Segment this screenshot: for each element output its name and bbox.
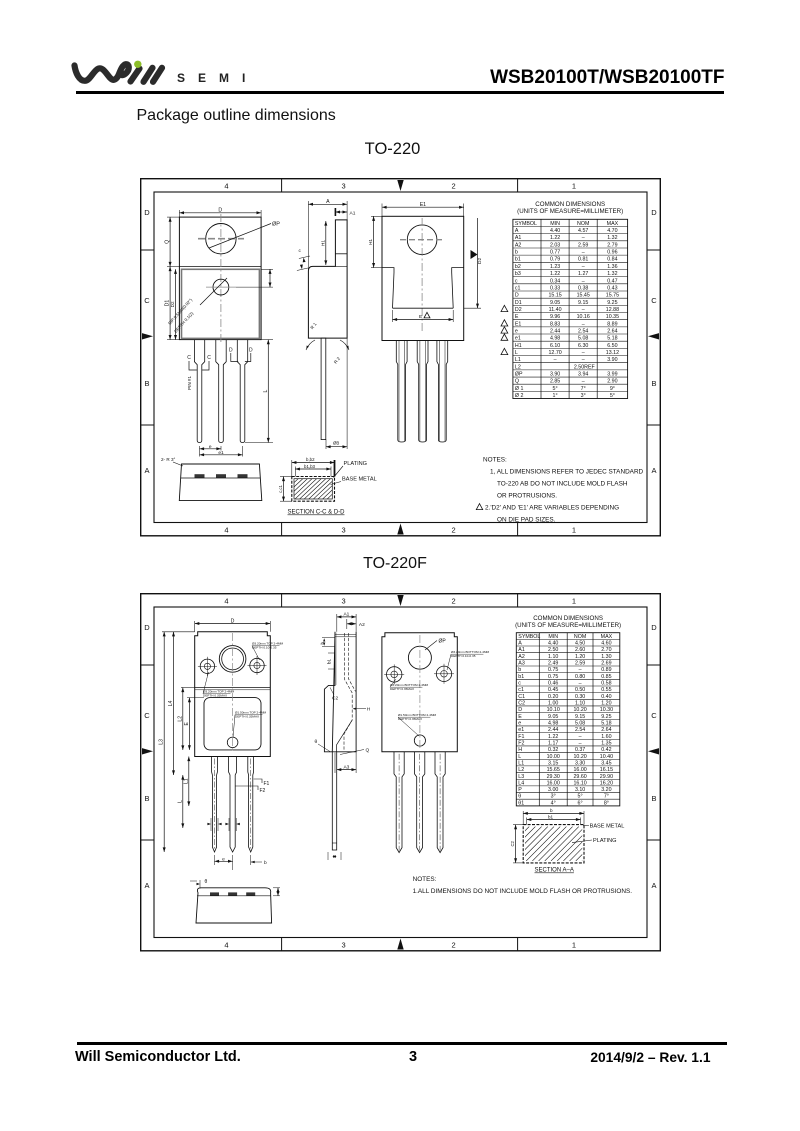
svg-text:3.94: 3.94: [578, 371, 588, 377]
svg-text:A1: A1: [519, 647, 526, 653]
svg-text:(UNITS OF MEASURE=MILLIMETER): (UNITS OF MEASURE=MILLIMETER): [515, 622, 621, 629]
svg-text:10.10: 10.10: [547, 707, 560, 713]
svg-text:c: c: [514, 278, 517, 284]
svg-text:3.90: 3.90: [549, 371, 559, 377]
svg-text:Ø 2: Ø 2: [514, 393, 523, 399]
svg-text:6.50: 6.50: [607, 343, 617, 349]
svg-text:SECTION C-C & D-D: SECTION C-C & D-D: [287, 510, 345, 516]
svg-text:(UNITS OF MEASURE=MILLIMETER): (UNITS OF MEASURE=MILLIMETER): [517, 208, 623, 215]
svg-text:10.16: 10.16: [576, 314, 589, 320]
svg-text:1.22: 1.22: [549, 271, 559, 277]
svg-text:3.45: 3.45: [602, 760, 612, 766]
svg-text:b3: b3: [514, 271, 520, 277]
svg-text:C: C: [651, 296, 657, 305]
svg-text:F1: F1: [264, 781, 270, 787]
svg-text:6.30: 6.30: [578, 343, 588, 349]
svg-text:–: –: [579, 681, 582, 687]
svg-text:e1: e1: [519, 727, 525, 733]
svg-text:L: L: [178, 800, 184, 803]
svg-text:–: –: [581, 278, 584, 284]
svg-text:2.'D2' AND 'E1' ARE VARIABLES: 2.'D2' AND 'E1' ARE VARIABLES DEPENDING: [485, 505, 619, 512]
svg-text:E1: E1: [514, 321, 521, 327]
svg-text:b: b: [550, 808, 553, 813]
svg-text:2.59: 2.59: [578, 242, 588, 248]
svg-text:Q: Q: [366, 748, 370, 754]
svg-text:3.15: 3.15: [548, 760, 558, 766]
svg-text:–: –: [581, 357, 584, 363]
svg-text:H: H: [519, 747, 523, 753]
svg-text:2.90: 2.90: [607, 379, 617, 385]
svg-text:3: 3: [341, 526, 345, 535]
svg-text:4°: 4°: [551, 800, 556, 806]
svg-text:16.10: 16.10: [574, 780, 587, 786]
svg-text:2.60: 2.60: [575, 647, 585, 653]
svg-text:0.20: 0.20: [548, 694, 558, 700]
svg-text:2.79: 2.79: [607, 242, 617, 248]
svg-text:L3: L3: [519, 774, 525, 780]
svg-text:ON DIE PAD SIZES.: ON DIE PAD SIZES.: [497, 517, 556, 524]
svg-text:ØB: ØB: [333, 441, 339, 446]
svg-text:6.10: 6.10: [549, 343, 559, 349]
svg-text:C2: C2: [519, 700, 526, 706]
svg-text:4: 4: [225, 597, 229, 606]
svg-text:TO-220 AB DO NOT INCLUDE MOLD: TO-220 AB DO NOT INCLUDE MOLD FLASH: [497, 481, 628, 488]
svg-text:7°: 7°: [604, 794, 609, 800]
svg-text:NOTES:: NOTES:: [413, 876, 437, 883]
svg-text:1: 1: [571, 526, 575, 535]
svg-text:2.69: 2.69: [602, 661, 612, 667]
svg-text:1: 1: [571, 182, 575, 191]
svg-text:0.85: 0.85: [602, 674, 612, 680]
svg-text:L4: L4: [519, 780, 525, 786]
svg-text:4: 4: [224, 182, 228, 191]
svg-text:0.38: 0.38: [578, 285, 588, 291]
svg-text:e1: e1: [218, 450, 224, 456]
svg-text:–: –: [581, 235, 584, 241]
svg-text:D: D: [231, 618, 235, 624]
svg-text:DEPTH 0.35MAX: DEPTH 0.35MAX: [235, 715, 259, 719]
svg-text:2.50: 2.50: [548, 647, 558, 653]
svg-text:MAX: MAX: [606, 221, 618, 227]
svg-text:1: 1: [572, 941, 576, 950]
svg-text:C: C: [652, 711, 658, 720]
svg-text:2.03: 2.03: [549, 242, 559, 248]
svg-text:11.40: 11.40: [548, 307, 561, 313]
svg-text:E: E: [184, 721, 190, 725]
svg-text:0.79: 0.79: [549, 257, 559, 263]
svg-text:b,b2: b,b2: [306, 457, 315, 462]
svg-text:A3: A3: [344, 764, 350, 770]
svg-text:b1: b1: [548, 814, 554, 819]
svg-text:3.90: 3.90: [607, 357, 617, 363]
svg-text:3.00: 3.00: [548, 787, 558, 793]
svg-text:H1: H1: [368, 239, 373, 245]
svg-text:13.12: 13.12: [605, 350, 618, 356]
svg-text:C1: C1: [519, 694, 526, 700]
svg-text:0.43: 0.43: [607, 285, 617, 291]
svg-text:PIN #1: PIN #1: [187, 376, 192, 390]
svg-text:10.40: 10.40: [600, 754, 613, 760]
svg-text:0.30: 0.30: [575, 694, 585, 700]
svg-text:3.99: 3.99: [607, 371, 617, 377]
svg-text:3.10: 3.10: [575, 787, 585, 793]
svg-text:A1: A1: [349, 211, 355, 217]
svg-text:1.35: 1.35: [602, 740, 612, 746]
svg-text:2.54: 2.54: [578, 328, 588, 334]
svg-text:0.32: 0.32: [548, 747, 558, 753]
svg-text:L: L: [262, 389, 268, 392]
svg-text:5°: 5°: [552, 386, 557, 392]
svg-text:2- R 3°: 2- R 3°: [161, 457, 176, 462]
svg-text:A: A: [652, 881, 657, 890]
svg-text:10.35: 10.35: [605, 314, 618, 320]
svg-text:9.15: 9.15: [575, 714, 585, 720]
svg-text:PLATING: PLATING: [593, 838, 617, 844]
svg-text:8°: 8°: [604, 800, 609, 806]
svg-text:4: 4: [224, 526, 228, 535]
svg-text:ØP: ØP: [439, 639, 447, 645]
svg-text:5.08: 5.08: [578, 336, 588, 342]
svg-text:3°: 3°: [580, 393, 585, 399]
svg-text:F2: F2: [260, 788, 266, 794]
svg-text:b1: b1: [327, 658, 332, 664]
svg-text:L3: L3: [159, 739, 165, 745]
svg-text:c1: c1: [519, 687, 525, 693]
svg-text:2.64: 2.64: [607, 328, 617, 334]
svg-text:15.65: 15.65: [547, 767, 560, 773]
svg-text:1.32: 1.32: [607, 271, 617, 277]
svg-text:c: c: [519, 681, 522, 687]
svg-text:SECTION A–A: SECTION A–A: [535, 868, 574, 874]
svg-text:4: 4: [225, 941, 229, 950]
svg-text:MIN: MIN: [549, 634, 559, 640]
svg-text:9.25: 9.25: [602, 714, 612, 720]
svg-text:ØP: ØP: [272, 222, 280, 228]
svg-text:e1: e1: [514, 336, 520, 342]
svg-text:e: e: [519, 720, 522, 726]
svg-text:1.20: 1.20: [602, 700, 612, 706]
svg-text:BASE METAL: BASE METAL: [342, 477, 377, 483]
svg-text:H1: H1: [320, 240, 325, 246]
svg-text:C: C: [207, 355, 211, 361]
svg-text:7°: 7°: [580, 386, 585, 392]
svg-text:1.00: 1.00: [548, 700, 558, 706]
svg-text:10.00: 10.00: [547, 754, 560, 760]
svg-text:2.50REF: 2.50REF: [573, 364, 595, 370]
svg-text:3: 3: [341, 182, 345, 191]
svg-text:D: D: [228, 348, 232, 354]
svg-text:15.15: 15.15: [548, 293, 561, 299]
svg-text:0.42: 0.42: [602, 747, 612, 753]
svg-text:16.00: 16.00: [547, 780, 560, 786]
svg-text:D: D: [145, 623, 151, 632]
svg-text:b1: b1: [514, 257, 520, 263]
svg-text:D2: D2: [170, 301, 175, 307]
svg-text:–: –: [581, 321, 584, 327]
svg-text:θ: θ: [205, 879, 208, 885]
svg-text:16.20: 16.20: [600, 780, 613, 786]
svg-text:SYMBOL: SYMBOL: [519, 634, 541, 640]
svg-text:A: A: [519, 641, 523, 647]
svg-text:θ1: θ1: [519, 800, 525, 806]
svg-text:2.59: 2.59: [575, 661, 585, 667]
svg-text:4.40: 4.40: [548, 641, 558, 647]
svg-text:D: D: [248, 348, 252, 354]
svg-text:b1,b3: b1,b3: [304, 464, 316, 469]
svg-text:θ: θ: [519, 794, 522, 800]
svg-text:29.60: 29.60: [574, 774, 587, 780]
svg-text:1.36: 1.36: [607, 264, 617, 270]
svg-text:3: 3: [342, 597, 346, 606]
svg-text:b: b: [514, 250, 517, 256]
svg-text:3: 3: [342, 941, 346, 950]
svg-text:OR PROTRUSIONS.: OR PROTRUSIONS.: [497, 493, 557, 500]
svg-text:2.70: 2.70: [602, 647, 612, 653]
svg-text:0.84: 0.84: [607, 257, 617, 263]
svg-text:0.33: 0.33: [549, 285, 559, 291]
svg-text:L: L: [514, 350, 517, 356]
svg-text:2: 2: [452, 597, 456, 606]
svg-text:B: B: [651, 379, 656, 388]
svg-text:A2: A2: [359, 622, 365, 628]
svg-text:8.89: 8.89: [607, 321, 617, 327]
svg-text:1.17: 1.17: [548, 740, 558, 746]
svg-text:A: A: [326, 199, 330, 205]
svg-text:29.30: 29.30: [547, 774, 560, 780]
svg-text:F1: F1: [519, 734, 525, 740]
svg-text:9.15: 9.15: [578, 300, 588, 306]
svg-text:c,c1: c,c1: [278, 484, 283, 492]
svg-text:DEPTH 0.35MAX: DEPTH 0.35MAX: [390, 687, 414, 691]
svg-text:10.20: 10.20: [574, 707, 587, 713]
svg-text:A: A: [651, 466, 656, 475]
svg-text:A: A: [144, 466, 149, 475]
svg-text:9°: 9°: [609, 386, 614, 392]
svg-text:A: A: [145, 881, 150, 890]
svg-text:1.32: 1.32: [607, 235, 617, 241]
svg-text:D: D: [144, 208, 150, 217]
svg-text:Ø 1: Ø 1: [514, 386, 523, 392]
svg-text:L4: L4: [168, 700, 174, 706]
svg-text:–: –: [581, 379, 584, 385]
svg-text:16.00: 16.00: [574, 767, 587, 773]
svg-text:4.60: 4.60: [602, 641, 612, 647]
svg-text:1.30: 1.30: [602, 654, 612, 660]
svg-text:Q: Q: [164, 240, 170, 244]
svg-text:COMMON DIMENSIONS: COMMON DIMENSIONS: [535, 201, 605, 208]
svg-text:Q: Q: [514, 379, 518, 385]
svg-text:–: –: [581, 264, 584, 270]
svg-text:DEPTH 0.35MAX: DEPTH 0.35MAX: [203, 694, 227, 698]
svg-text:DEPTH 0.10-0.35: DEPTH 0.10-0.35: [451, 654, 476, 658]
svg-text:1: 1: [572, 597, 576, 606]
svg-text:c1: c1: [514, 285, 520, 291]
svg-text:F2: F2: [519, 740, 525, 746]
svg-text:–: –: [581, 350, 584, 356]
svg-text:12.88: 12.88: [605, 307, 618, 313]
svg-text:0.80: 0.80: [575, 674, 585, 680]
svg-text:6°: 6°: [578, 800, 583, 806]
svg-text:1.10: 1.10: [548, 654, 558, 660]
svg-text:H: H: [367, 707, 371, 713]
svg-text:0.77: 0.77: [549, 250, 559, 256]
svg-text:9.25: 9.25: [607, 300, 617, 306]
svg-text:5.18: 5.18: [607, 336, 617, 342]
svg-text:D1: D1: [514, 300, 521, 306]
svg-text:C: C: [187, 355, 191, 361]
svg-text:D: D: [519, 707, 523, 713]
svg-text:D: D: [218, 208, 222, 214]
svg-text:1.20: 1.20: [575, 654, 585, 660]
svg-text:–: –: [579, 734, 582, 740]
svg-text:C2: C2: [332, 696, 338, 702]
svg-text:DEPTH 0.10-0.35: DEPTH 0.10-0.35: [252, 646, 277, 650]
svg-text:–: –: [553, 357, 556, 363]
svg-text:0.58: 0.58: [602, 681, 612, 687]
svg-text:A3: A3: [519, 661, 526, 667]
svg-text:10.30: 10.30: [600, 707, 613, 713]
svg-text:e: e: [208, 445, 211, 450]
svg-text:D2: D2: [514, 307, 521, 313]
svg-text:0.96: 0.96: [607, 250, 617, 256]
svg-text:D2: D2: [477, 258, 483, 264]
svg-text:0.81: 0.81: [578, 257, 588, 263]
svg-text:E: E: [419, 314, 422, 320]
svg-text:1°: 1°: [552, 393, 557, 399]
svg-text:2: 2: [452, 941, 456, 950]
svg-text:L1: L1: [519, 760, 525, 766]
svg-text:e: e: [514, 328, 517, 334]
svg-text:A: A: [514, 228, 518, 234]
svg-text:0.50: 0.50: [575, 687, 585, 693]
svg-text:1.23: 1.23: [549, 264, 559, 270]
svg-text:SYMBOL: SYMBOL: [514, 221, 536, 227]
svg-text:0.47: 0.47: [607, 278, 617, 284]
svg-text:MIN: MIN: [550, 221, 560, 227]
svg-text:0.75: 0.75: [548, 667, 558, 673]
svg-text:A2: A2: [514, 242, 521, 248]
svg-text:15.45: 15.45: [576, 293, 589, 299]
svg-text:4.70: 4.70: [607, 228, 617, 234]
svg-text:MAX: MAX: [601, 634, 613, 640]
svg-text:b2: b2: [514, 264, 520, 270]
svg-text:4.50: 4.50: [575, 641, 585, 647]
svg-text:3.30: 3.30: [575, 760, 585, 766]
svg-text:–: –: [581, 307, 584, 313]
svg-text:E: E: [519, 714, 523, 720]
svg-text:–: –: [579, 667, 582, 673]
svg-text:e: e: [223, 857, 226, 862]
svg-text:5°: 5°: [578, 794, 583, 800]
svg-text:2.44: 2.44: [548, 727, 558, 733]
svg-text:0.34: 0.34: [549, 278, 559, 284]
svg-text:0.37: 0.37: [575, 747, 585, 753]
svg-text:0.45: 0.45: [548, 687, 558, 693]
svg-text:P: P: [519, 787, 523, 793]
svg-text:R 2: R 2: [332, 356, 340, 365]
svg-text:B: B: [144, 379, 149, 388]
svg-text:BASE METAL: BASE METAL: [590, 824, 625, 830]
svg-text:L2: L2: [519, 767, 525, 773]
svg-text:–: –: [581, 250, 584, 256]
svg-text:2.85: 2.85: [549, 379, 559, 385]
svg-text:10.20: 10.20: [574, 754, 587, 760]
svg-text:COMMON DIMENSIONS: COMMON DIMENSIONS: [534, 615, 604, 622]
svg-text:2.49: 2.49: [548, 661, 558, 667]
svg-text:C2: C2: [510, 840, 515, 846]
svg-text:C: C: [145, 711, 151, 720]
svg-text:4.40: 4.40: [549, 228, 559, 234]
svg-text:0.55: 0.55: [602, 687, 612, 693]
svg-text:5.18: 5.18: [602, 720, 612, 726]
svg-text:0.75: 0.75: [548, 674, 558, 680]
svg-text:1, ALL DIMENSIONS REFER TO JED: 1, ALL DIMENSIONS REFER TO JEDEC STANDAR…: [490, 469, 644, 476]
svg-text:θ: θ: [315, 739, 318, 745]
svg-text:9.05: 9.05: [548, 714, 558, 720]
svg-text:H1: H1: [514, 343, 521, 349]
svg-text:E: E: [514, 314, 518, 320]
svg-text:15.75: 15.75: [605, 293, 618, 299]
svg-text:NOTES:: NOTES:: [483, 457, 507, 464]
svg-text:1.10: 1.10: [575, 700, 585, 706]
svg-text:3°: 3°: [551, 794, 556, 800]
svg-text:b: b: [264, 860, 267, 866]
svg-text:NOM: NOM: [577, 221, 589, 227]
svg-text:16.15: 16.15: [600, 767, 613, 773]
svg-text:4.57: 4.57: [578, 228, 588, 234]
svg-text:1.22: 1.22: [549, 235, 559, 241]
svg-text:9.05: 9.05: [549, 300, 559, 306]
svg-text:L2: L2: [178, 716, 184, 722]
svg-text:2: 2: [451, 182, 455, 191]
svg-text:9.96: 9.96: [549, 314, 559, 320]
svg-text:29.90: 29.90: [600, 774, 613, 780]
svg-text:b: b: [519, 667, 522, 673]
svg-text:D: D: [514, 293, 518, 299]
svg-text:E1: E1: [419, 202, 425, 208]
svg-text:L1: L1: [514, 357, 520, 363]
svg-text:3.20: 3.20: [602, 787, 612, 793]
svg-text:2.64: 2.64: [602, 727, 612, 733]
svg-text:B: B: [145, 794, 150, 803]
svg-text:0.46: 0.46: [548, 681, 558, 687]
svg-text:A1: A1: [514, 235, 521, 241]
svg-text:1.27: 1.27: [578, 271, 588, 277]
svg-text:b1: b1: [519, 674, 525, 680]
svg-text:B: B: [652, 794, 657, 803]
svg-text:1.ALL DIMENSIONS DO NOT INCLUD: 1.ALL DIMENSIONS DO NOT INCLUDE MOLD FLA…: [413, 888, 633, 895]
svg-text:PLATING: PLATING: [343, 461, 367, 467]
svg-text:D: D: [652, 623, 658, 632]
svg-text:L1: L1: [184, 778, 190, 784]
svg-text:2.44: 2.44: [549, 328, 559, 334]
svg-text:4.98: 4.98: [548, 720, 558, 726]
svg-text:NOM: NOM: [574, 634, 586, 640]
svg-text:1.22: 1.22: [548, 734, 558, 740]
svg-text:5°: 5°: [609, 393, 614, 399]
svg-text:0.89: 0.89: [602, 667, 612, 673]
svg-text:12.70: 12.70: [548, 350, 561, 356]
svg-text:c: c: [298, 249, 301, 254]
svg-text:R 1: R 1: [309, 321, 317, 330]
svg-text:–: –: [579, 740, 582, 746]
svg-text:0.40: 0.40: [602, 694, 612, 700]
svg-text:4.98: 4.98: [549, 336, 559, 342]
svg-text:D: D: [651, 208, 657, 217]
svg-text:2.54: 2.54: [575, 727, 585, 733]
svg-text:C: C: [144, 296, 150, 305]
svg-text:2: 2: [451, 526, 455, 535]
